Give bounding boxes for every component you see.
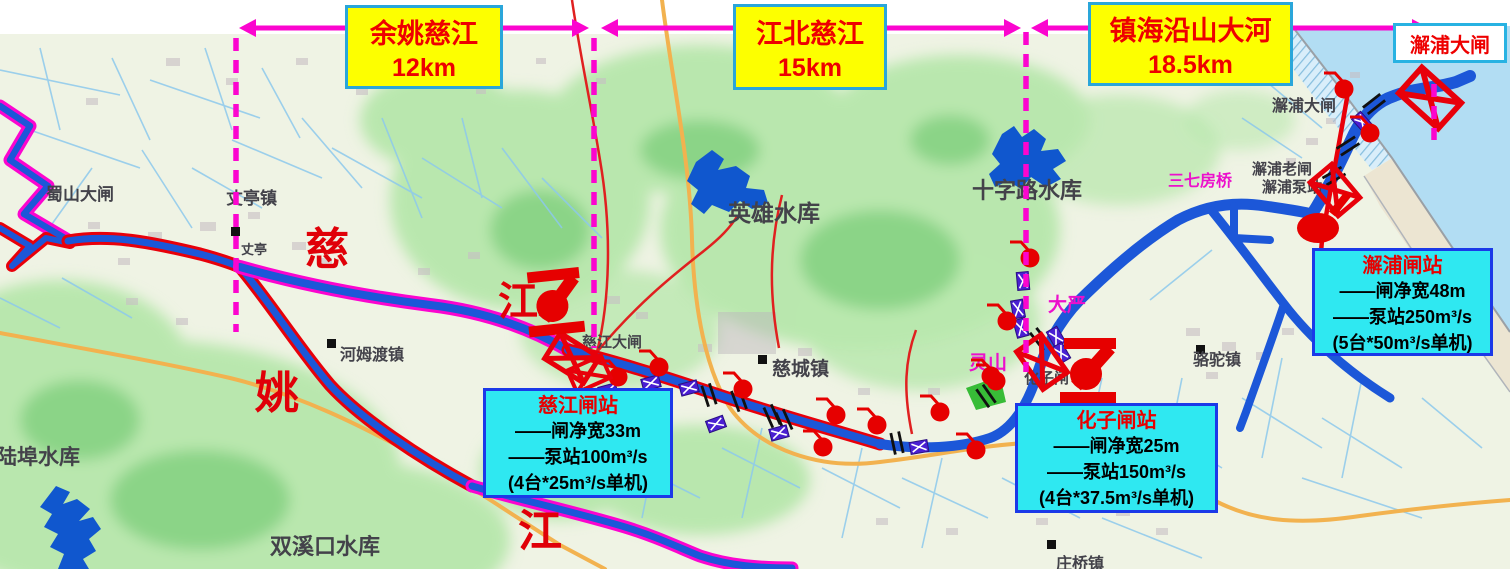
water-infrastructure-map: 蜀山大闸 丈亭镇 丈亭 河姆渡镇 陆埠水库 双溪口水库 英雄水库 慈城镇 十字路… xyxy=(0,0,1510,569)
label-dayan: 大严 xyxy=(1048,296,1086,315)
river-char-ci: 慈 xyxy=(305,228,349,272)
station-title: 慈江闸站 xyxy=(486,394,670,418)
station-line: (5台*50m³/s单机) xyxy=(1315,330,1490,356)
station-line: ——闸净宽25m xyxy=(1018,433,1215,459)
label-xiepu-bengzhan: 澥浦泵站 xyxy=(1262,181,1322,196)
label-shuangxikou-reservoir: 双溪口水库 xyxy=(270,536,380,558)
label-cicheng-town: 慈城镇 xyxy=(772,360,829,379)
river-char-jiang-lower: 江 xyxy=(518,510,562,554)
segment-box-zhenhai-yanshan: 镇海沿山大河 18.5km xyxy=(1088,2,1293,86)
station-line: ——闸净宽33m xyxy=(486,418,670,444)
station-line: (4台*37.5m³/s单机) xyxy=(1018,485,1215,511)
label-huazi-zha: 化子闸 xyxy=(1024,372,1069,387)
segment-box-jiangbei-cijiang: 江北慈江 15km xyxy=(733,4,887,90)
label-sanqifang-bridge: 三七房桥 xyxy=(1168,174,1232,190)
station-line: ——闸净宽48m xyxy=(1315,278,1490,304)
label-lingshan: 灵山 xyxy=(969,354,1007,373)
river-char-yao: 姚 xyxy=(255,372,299,416)
river-char-jiang-upper: 江 xyxy=(498,282,538,322)
segment-name: 余姚慈江 xyxy=(370,12,478,51)
label-luotuo-town: 骆驼镇 xyxy=(1193,353,1241,369)
label-shizilu-reservoir: 十字路水库 xyxy=(972,180,1082,202)
segment-box-yuyao-cijiang: 余姚慈江 12km xyxy=(345,5,503,89)
xiepu-dazha-callout-text: 澥浦大闸 xyxy=(1410,29,1490,58)
segment-length: 15km xyxy=(778,54,842,83)
segment-length: 18.5km xyxy=(1148,51,1233,80)
label-xiepu-laozha: 澥浦老闸 xyxy=(1252,163,1312,178)
segment-name: 江北慈江 xyxy=(756,12,864,51)
label-shushan-gate: 蜀山大闸 xyxy=(46,186,114,203)
label-hemudu-town: 河姆渡镇 xyxy=(340,348,404,364)
segment-name: 镇海沿山大河 xyxy=(1110,9,1272,48)
label-zhangting-town: 丈亭镇 xyxy=(226,190,277,207)
label-xiepu-dazha-map: 澥浦大闸 xyxy=(1272,99,1336,115)
segment-length: 12km xyxy=(392,54,456,83)
label-lubu-reservoir: 陆埠水库 xyxy=(0,447,80,468)
station-box-cijiang: 慈江闸站 ——闸净宽33m ——泵站100m³/s (4台*25m³/s单机) xyxy=(483,388,673,498)
station-line: ——泵站150m³/s xyxy=(1018,459,1215,485)
station-line: ——泵站100m³/s xyxy=(486,444,670,470)
station-line: (4台*25m³/s单机) xyxy=(486,470,670,496)
label-cijiang-dazha: 慈江大闸 xyxy=(582,336,642,351)
station-title: 澥浦闸站 xyxy=(1315,254,1490,278)
label-zhuangqiao-town: 庄桥镇 xyxy=(1056,557,1104,569)
station-box-xiepu: 澥浦闸站 ——闸净宽48m ——泵站250m³/s (5台*50m³/s单机) xyxy=(1312,248,1493,356)
station-title: 化子闸站 xyxy=(1018,409,1215,433)
xiepu-dazha-callout: 澥浦大闸 xyxy=(1393,23,1507,63)
station-line: ——泵站250m³/s xyxy=(1315,304,1490,330)
station-box-huazi: 化子闸站 ——闸净宽25m ——泵站150m³/s (4台*37.5m³/s单机… xyxy=(1015,403,1218,513)
label-yingxiong-reservoir: 英雄水库 xyxy=(728,202,820,225)
label-zhangting: 丈亭 xyxy=(241,243,267,256)
